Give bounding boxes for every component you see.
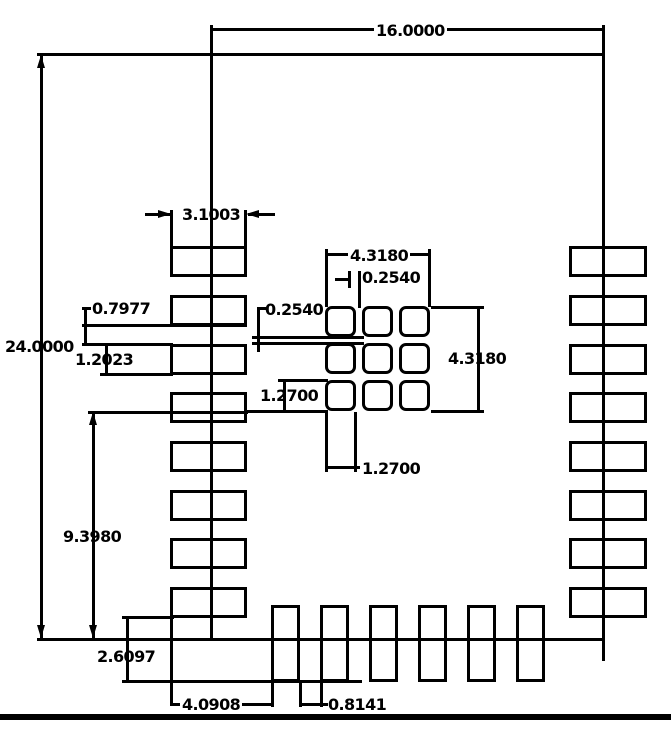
dimension-arrowhead: [37, 625, 45, 638]
smd-pad-bottom-1: [271, 605, 300, 682]
dimension-arrowhead: [158, 210, 171, 218]
dimension-line: [358, 271, 361, 308]
smd-pad-right-1: [569, 246, 647, 277]
smd-pad-bottom-2: [320, 605, 349, 682]
smd-pad-bottom-5: [467, 605, 496, 682]
dimension-line: [257, 307, 260, 352]
dim-label-thermal-pad-width: 1.2700: [362, 461, 420, 477]
page-border-line: [0, 714, 671, 720]
footprint-dimension-drawing: 16.0000 24.0000 3.1003 0.7977 1.2023 0.2…: [0, 0, 671, 729]
dimension-line: [428, 249, 431, 307]
thermal-pad-r1c2: [362, 306, 393, 337]
smd-pad-left-2: [170, 295, 247, 326]
dimension-line: [122, 616, 174, 619]
dimension-line: [348, 271, 351, 288]
smd-pad-left-8: [170, 587, 247, 618]
smd-pad-left-7: [170, 538, 247, 569]
smd-pad-right-7: [569, 538, 647, 569]
thermal-pad-r2c2: [362, 343, 393, 374]
dim-label-side-pad-gap: 0.7977: [92, 301, 150, 317]
smd-pad-bottom-3: [369, 605, 398, 682]
dimension-line: [325, 412, 328, 472]
dimension-arrowhead: [89, 625, 97, 638]
board-outline-line: [37, 53, 605, 56]
thermal-pad-r3c3: [399, 380, 430, 411]
thermal-pad-r3c2: [362, 380, 393, 411]
dimension-line: [82, 343, 173, 346]
dim-label-thermal-col-gap: 0.2540: [362, 270, 420, 286]
thermal-pad-r1c1: [325, 306, 356, 337]
smd-pad-right-3: [569, 344, 647, 375]
smd-pad-bottom-4: [418, 605, 447, 682]
dimension-line: [302, 703, 328, 706]
thermal-pad-r1c3: [399, 306, 430, 337]
dimension-line: [245, 410, 328, 413]
dim-label-thermal-span-h: 4.3180: [348, 248, 410, 264]
thermal-pad-r2c1: [325, 343, 356, 374]
dim-label-thermal-pad-height: 1.2700: [260, 388, 318, 404]
dimension-line: [82, 307, 91, 310]
dimension-arrowhead: [246, 210, 259, 218]
smd-pad-right-8: [569, 587, 647, 618]
dimension-line: [325, 249, 328, 307]
dim-label-board-height: 24.0000: [5, 339, 74, 355]
dimension-line: [170, 617, 173, 706]
dim-label-thermal-row-gap: 0.2540: [265, 302, 323, 318]
dim-label-bottom-overhang: 2.6097: [97, 649, 155, 665]
smd-pad-right-4: [569, 392, 647, 423]
smd-pad-right-5: [569, 441, 647, 472]
smd-pad-left-1: [170, 246, 247, 277]
dim-label-bottom-pad-gap: 0.8141: [328, 697, 386, 713]
smd-pad-right-2: [569, 295, 647, 326]
dimension-arrowhead: [89, 412, 97, 425]
dimension-line: [92, 412, 95, 640]
dimension-line: [84, 307, 87, 346]
smd-pad-left-3: [170, 344, 247, 375]
smd-pad-left-4: [170, 392, 247, 423]
dim-label-bottom-pad-offset: 4.0908: [180, 697, 242, 713]
thermal-pad-r2c3: [399, 343, 430, 374]
smd-pad-left-6: [170, 490, 247, 521]
dim-label-side-pad-height: 1.2023: [75, 352, 133, 368]
dimension-line: [354, 412, 357, 472]
dim-label-side-pad-width: 3.1003: [182, 207, 240, 223]
dimension-arrowhead: [37, 55, 45, 68]
smd-pad-left-5: [170, 441, 247, 472]
dim-label-board-width: 16.0000: [374, 23, 447, 39]
dim-label-thermal-span-v: 4.3180: [448, 351, 506, 367]
thermal-pad-r3c1: [325, 380, 356, 411]
smd-pad-bottom-6: [516, 605, 545, 682]
dimension-line: [326, 466, 360, 469]
dim-label-left-column-span: 9.3980: [63, 529, 121, 545]
dimension-line: [100, 373, 173, 376]
smd-pad-right-6: [569, 490, 647, 521]
